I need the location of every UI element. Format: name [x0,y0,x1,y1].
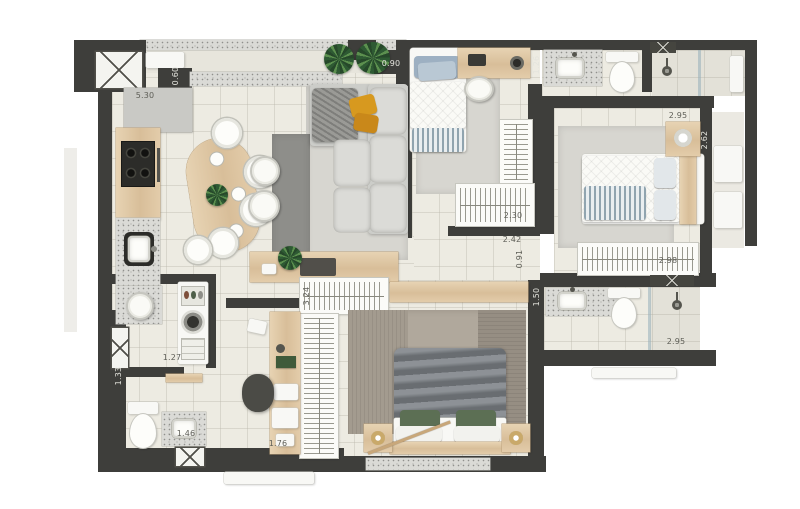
desk-lamp-icon [276,344,285,353]
dining-chair [184,236,212,264]
dining-chair [212,118,242,148]
toilet-tank [606,52,638,62]
dim-bath2-vanity: 1.50 [533,288,541,307]
dim-closet1-width: 2.30 [504,212,523,220]
master-dresser [390,282,528,302]
oven-handle [157,148,160,182]
faucet-icon [572,52,577,57]
shaft-x-icon [96,52,142,88]
wall-bedroom2-left [540,108,554,234]
plate [209,152,224,167]
living-rug-dark [272,134,310,258]
master-closet-top [300,278,388,314]
dim-wc-width: 1.33 [115,367,123,386]
supply-bottle [198,291,203,299]
gold-lamp-icon [509,431,523,445]
desk-chair [464,76,494,102]
printer [272,408,298,428]
master-closet-side [300,314,338,458]
supply-bottle [184,291,189,299]
side-table [248,190,280,222]
bath2-sink [558,292,586,310]
wall-bath1-bedroom2 [542,96,714,108]
laundry-sink [126,292,154,320]
table-plant-icon [206,184,228,206]
desk-frame [274,384,298,400]
toilet [610,62,634,92]
shaft-x-bottom-icon [176,448,204,466]
bedroom1-closet-upper [500,120,532,184]
laundry-shelf [181,286,205,306]
shower-glass [698,50,701,96]
shower-head-icon [662,66,672,76]
faucet-icon [570,287,575,292]
wall-closet1-bottom [448,226,540,236]
sofa-back-cushion [370,136,406,182]
office-desk [270,312,300,454]
shower-head-icon [672,300,682,310]
cooktop [122,142,154,186]
washing-machine [181,310,205,334]
laptop [468,54,486,66]
dim-balcony-edge: 0.90 [382,60,401,68]
kitchen-sink [128,236,150,262]
laundry-drawers [181,338,205,360]
bedroom1-duvet [410,82,466,128]
dim-closet2-width: 2.98 [659,257,678,265]
console-tray [300,258,336,276]
sofa-back-cushion [370,184,406,232]
console-card [262,264,276,274]
dim-bath2-width: 2.95 [667,338,686,346]
toilet [612,298,636,328]
bath1-sink [556,58,584,78]
ac-unit [714,192,742,228]
bedroom2-foot-blanket [584,186,646,220]
plant-icon [356,42,390,74]
desk-clock-icon [510,56,524,70]
dim-bedroom2-depth: 2.62 [701,131,709,150]
dim-wc-vanity: 1.46 [177,430,196,438]
shower-glass [648,287,651,350]
exterior-sill-bottom [224,472,314,484]
faucet-icon [151,246,157,252]
white-pillow [454,426,500,442]
dim-bath1-vanity: 1.26 [533,56,541,75]
shower-bench [730,56,743,92]
sofa-seat-cushion [334,188,370,232]
wall-master-right [528,280,544,462]
wall-bath1-divider [642,50,652,92]
dim-counter-depth: 0.60 [172,67,180,86]
bedside-lamp-icon [674,129,692,147]
bedroom2-headboard [680,154,696,224]
dim-kitchen-run: 5.30 [136,92,155,100]
mustard-pillow [353,112,380,134]
dim-office-width: 1.76 [269,440,288,448]
wall-bath2-bottom [528,350,716,366]
bedroom2-closet [578,243,698,275]
toilet [130,414,156,448]
dim-laundry-width: 1.27 [163,354,182,362]
towel-rack-icon [650,275,694,286]
master-headboard [390,442,510,454]
floor-plan: 5.30 0.60 0.90 1.26 2.95 2.62 2.30 2.42 … [0,0,800,509]
supply-bottle [191,291,196,299]
balcony-cabinet [146,52,184,68]
sofa-seat-cushion [334,140,370,186]
wall-living-master [226,298,302,308]
dining-chair [208,228,238,258]
ac-unit [714,146,742,182]
gold-lamp-icon [371,431,385,445]
toilet-tank [128,402,158,414]
wall-left [98,40,112,470]
exterior-ledge-left [64,148,77,332]
dim-bath1-width: 2.95 [669,112,688,120]
bedroom2-pillow [654,158,676,188]
bedroom2-pillow [654,190,676,220]
toilet-tank [608,288,640,298]
console-plant-icon [278,246,302,270]
side-table [250,156,280,186]
office-chair [242,374,274,412]
window-sill-master [366,458,490,470]
plant-icon [324,44,354,74]
refrigerator [124,88,192,132]
exterior-sill-bath2 [592,368,676,378]
dim-hall-width: 0.91 [516,250,524,269]
shaft-x-left-icon [112,328,128,368]
blue-pillow [417,61,456,82]
wall-right [745,40,757,246]
dim-hall-length: 2.42 [503,236,522,244]
bedroom1-foot-blanket [412,128,464,152]
dim-master-closet: 3.24 [303,287,311,306]
books [276,356,296,368]
wc-shelf [166,374,202,382]
